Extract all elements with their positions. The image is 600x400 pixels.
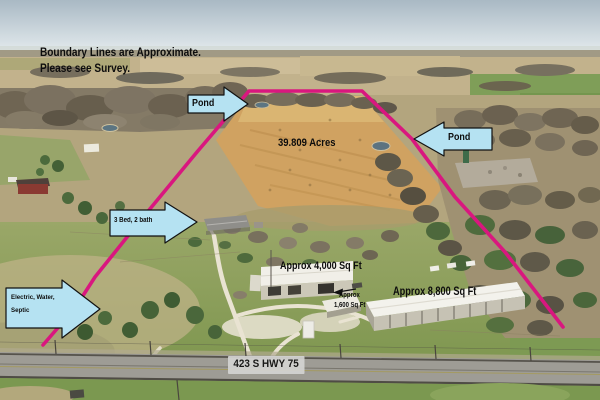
disclaimer-text: Boundary Lines are Approximate. Please s… (40, 44, 201, 76)
disclaimer-line-1: Boundary Lines are Approximate. (40, 44, 201, 60)
pond-east-label: Pond (448, 131, 470, 143)
address-badge: 423 S HWY 75 (228, 356, 304, 374)
acreage-label: 39.809 Acres (278, 137, 336, 150)
bed-bath-label: 3 Bed, 2 bath (114, 217, 152, 225)
pond-east (372, 142, 390, 151)
pond-west (255, 102, 269, 108)
shed-sqft-label-line-2: 1,600 Sq Ft (334, 302, 365, 310)
pond-west-label: Pond (192, 97, 214, 109)
warehouse-sqft-label: Approx 8,800 Sq Ft (393, 286, 476, 299)
utilities-label: Electric, Water, Septic (11, 291, 55, 317)
utilities-line-2: Septic (11, 304, 55, 317)
utilities-line-1: Electric, Water, (11, 291, 55, 304)
shed-sqft-label-line-1: Approx (339, 292, 360, 300)
disclaimer-line-2: Please see Survey. (40, 60, 201, 76)
listing-aerial-photo: Boundary Lines are Approximate. Please s… (0, 0, 600, 400)
shop-sqft-label: Approx 4,000 Sq Ft (280, 260, 362, 273)
